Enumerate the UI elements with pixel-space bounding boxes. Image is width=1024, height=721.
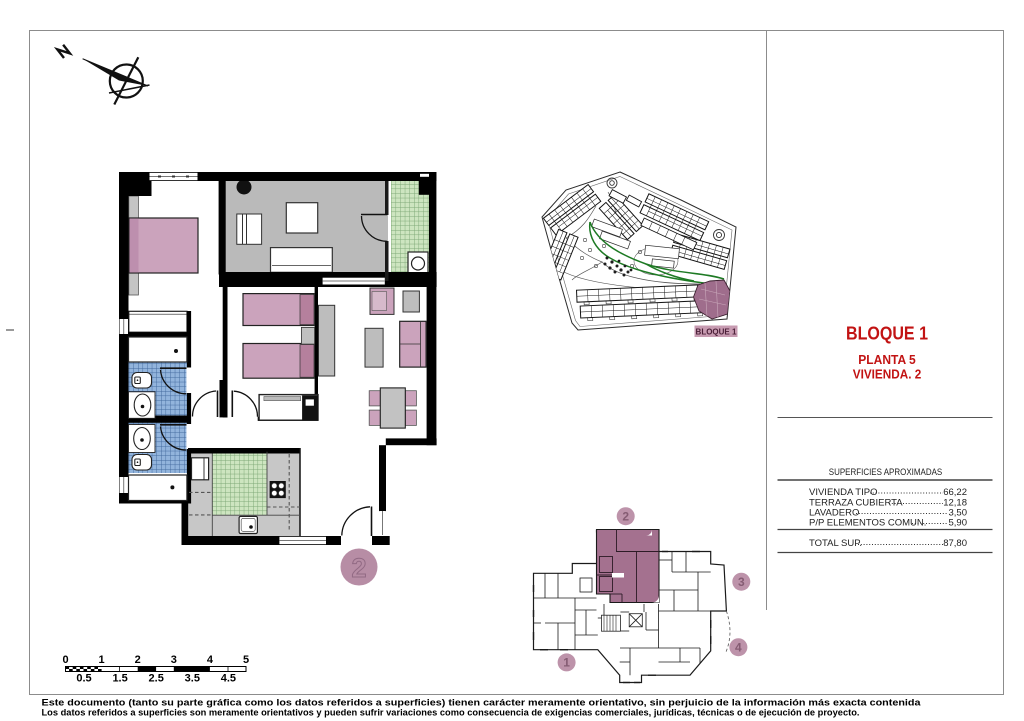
svg-text:4: 4 [735,641,742,655]
svg-text:3: 3 [171,654,177,666]
svg-text:4.5: 4.5 [221,673,236,685]
svg-text:2: 2 [351,553,366,583]
svg-text:2.5: 2.5 [149,673,164,685]
svg-text:PLANTA 5: PLANTA 5 [858,353,916,367]
svg-text:1.5: 1.5 [112,673,127,685]
svg-text:2: 2 [135,654,141,666]
svg-text:VIVIENDA. 2: VIVIENDA. 2 [853,368,922,382]
svg-text:0.5: 0.5 [76,673,91,685]
svg-text:BLOQUE 1: BLOQUE 1 [846,323,928,344]
svg-text:5,90: 5,90 [949,518,968,529]
svg-text:87,80: 87,80 [943,538,967,549]
svg-text:2: 2 [622,510,629,524]
svg-text:0: 0 [62,654,68,666]
svg-text:1: 1 [99,654,105,666]
svg-text:P/P ELEMENTOS COMUN.: P/P ELEMENTOS COMUN. [809,518,926,529]
svg-text:BLOQUE 1: BLOQUE 1 [696,328,737,337]
svg-text:VIVIENDA TIPO: VIVIENDA TIPO [809,487,877,498]
svg-text:SUPERFICIES APROXIMADAS: SUPERFICIES APROXIMADAS [829,467,943,478]
svg-text:4: 4 [207,654,214,666]
svg-text:5: 5 [243,654,249,666]
svg-text:3: 3 [738,575,745,589]
svg-text:TOTAL SUP.: TOTAL SUP. [809,538,862,549]
svg-text:Los datos referidos a superfic: Los datos referidos a superficies son me… [42,708,860,718]
svg-text:66,22: 66,22 [943,487,967,498]
svg-text:1: 1 [563,656,570,670]
svg-text:3.5: 3.5 [185,673,200,685]
svg-text:Este documento (tanto su parte: Este documento (tanto su parte gráfica c… [42,698,922,708]
